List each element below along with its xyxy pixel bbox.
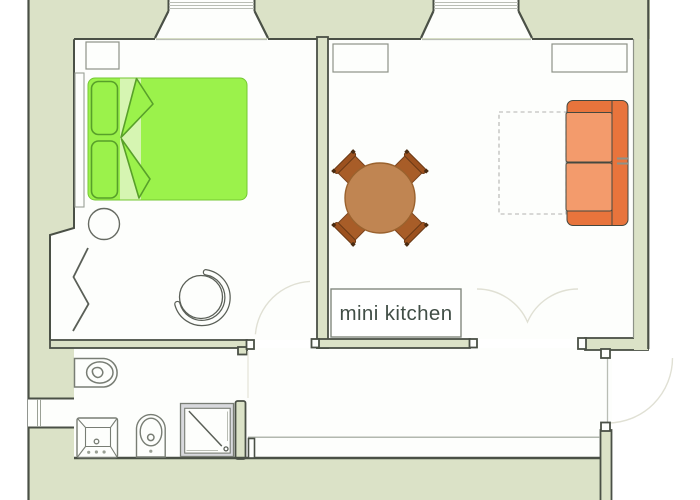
svg-text:mini kitchen: mini kitchen: [339, 302, 452, 325]
